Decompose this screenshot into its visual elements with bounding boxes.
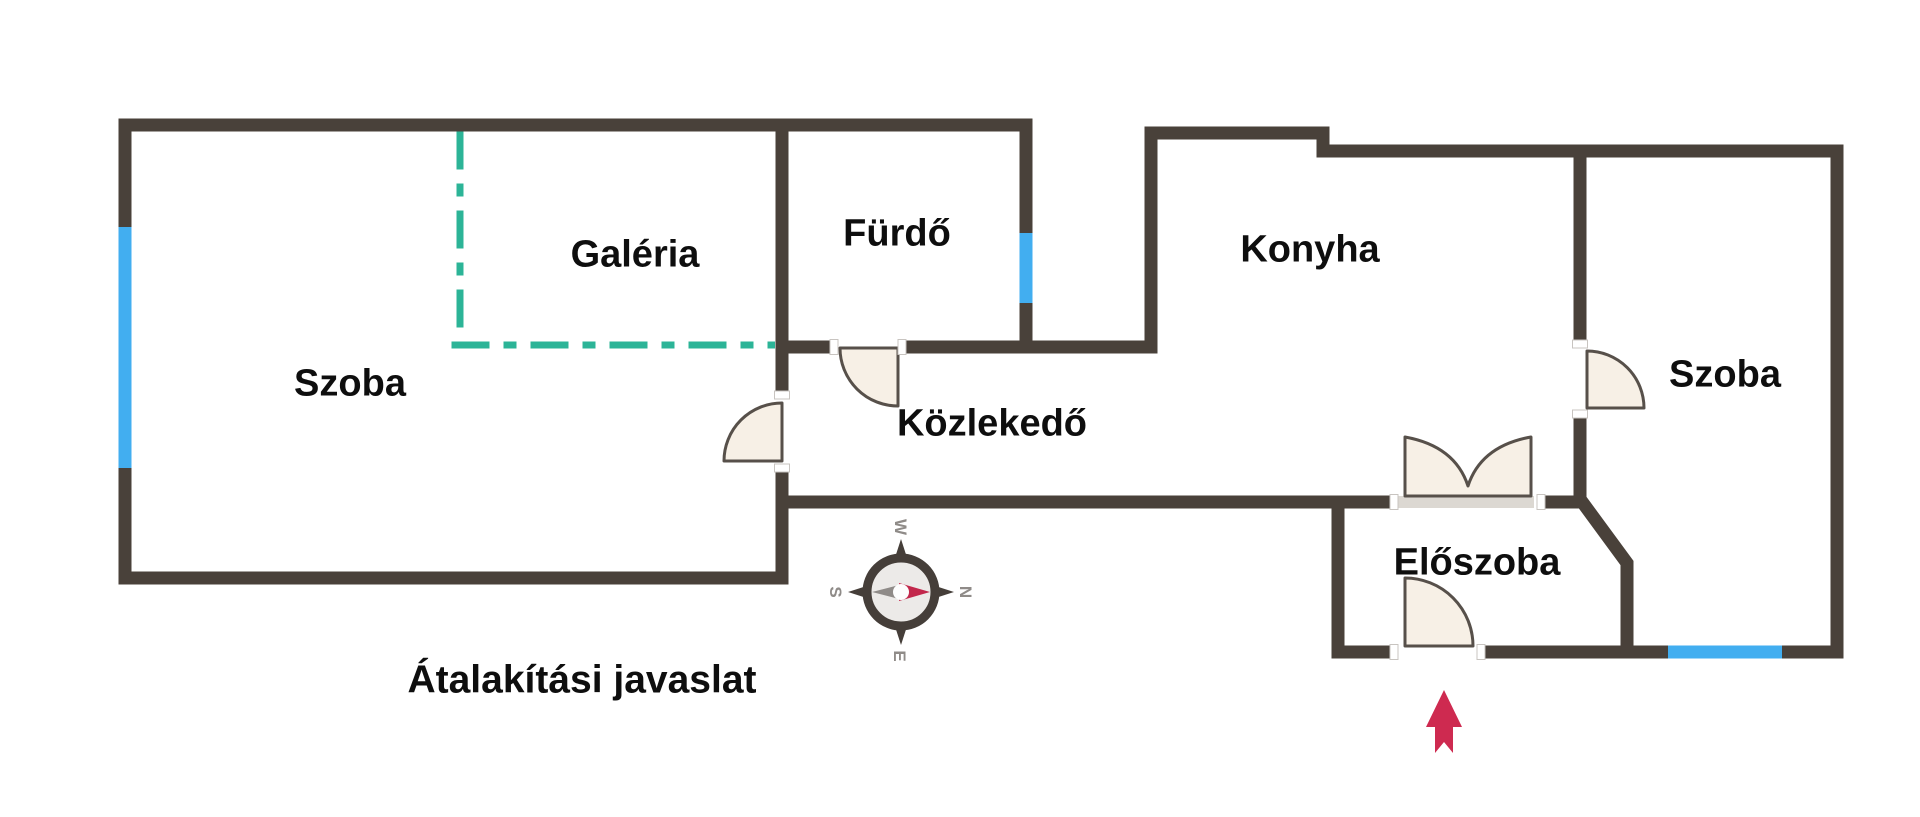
room-label-szoba-right: Szoba <box>1669 353 1782 395</box>
jamb <box>1573 340 1588 348</box>
entrance-door <box>1405 578 1473 646</box>
double-door-hall <box>1405 437 1531 496</box>
plan-title: Átalakítási javaslat <box>407 658 756 702</box>
entrance-arrow <box>1426 690 1462 753</box>
room-label-szoba-left: Szoba <box>294 362 407 404</box>
jamb <box>1390 495 1398 510</box>
room-label-konyha: Konyha <box>1240 228 1380 270</box>
room-labels: Szoba Galéria Fürdő Konyha Közlekedő Szo… <box>294 212 1782 583</box>
jamb <box>775 391 790 399</box>
room-label-kozlekedo: Közlekedő <box>897 402 1087 444</box>
compass-letter-n: N <box>956 586 975 598</box>
double-door-threshold <box>1398 496 1534 508</box>
compass-letter-e: E <box>890 650 909 661</box>
jamb <box>898 340 906 355</box>
compass-hub <box>893 584 909 600</box>
floor-plan-page: W N E S Szoba Galéria Fürdő Konyha Közle… <box>0 0 1920 817</box>
szoba-left-door <box>724 403 782 461</box>
room-label-furdo: Fürdő <box>843 212 951 254</box>
compass-letter-w: W <box>891 519 910 536</box>
jamb <box>1537 495 1545 510</box>
room-label-eloszoba: Előszoba <box>1394 541 1562 583</box>
compass-rose: W N E S <box>826 519 975 662</box>
jamb <box>1390 645 1398 660</box>
floor-plan: W N E S Szoba Galéria Fürdő Konyha Közle… <box>0 0 1920 817</box>
jamb <box>1477 645 1485 660</box>
jamb <box>775 464 790 472</box>
jamb <box>1573 410 1588 418</box>
bathroom-door <box>840 348 898 406</box>
room-label-galeria: Galéria <box>571 233 701 275</box>
wall-room-right-left-lower-diagonal <box>1580 410 1627 659</box>
compass-letter-s: S <box>826 586 845 597</box>
szoba-right-door <box>1587 351 1644 408</box>
jamb <box>830 340 838 355</box>
